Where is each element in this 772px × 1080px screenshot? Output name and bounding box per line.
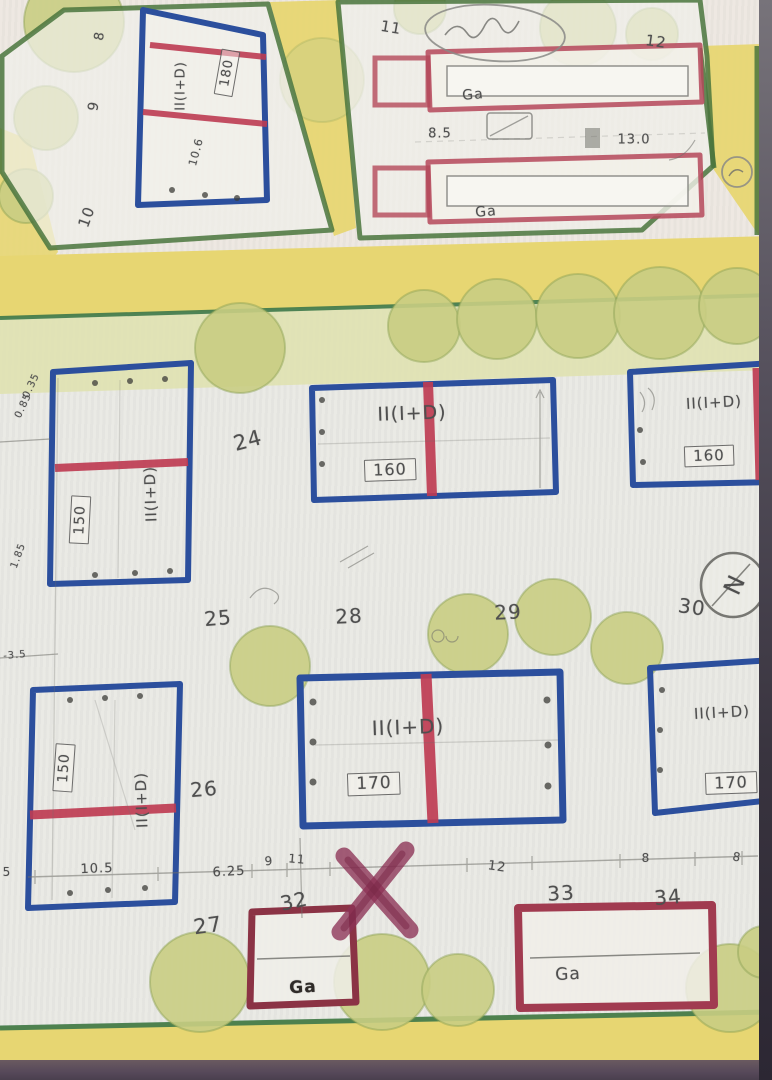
plot-number-33: 33 bbox=[547, 882, 575, 903]
ga-label-garage-left: Ga bbox=[289, 979, 317, 997]
plot-number-11: 11 bbox=[379, 19, 402, 37]
plot-number-12: 12 bbox=[645, 33, 668, 51]
dim-1-85: 1.85 bbox=[10, 542, 28, 570]
dim-12: 12 bbox=[487, 859, 507, 874]
compass-letter: N bbox=[718, 571, 748, 598]
plot-number-25: 25 bbox=[203, 607, 232, 629]
bldg-type-b3: II(I+D) bbox=[686, 394, 743, 412]
area-box-180: 180 bbox=[214, 49, 241, 97]
bldg-type-b5: II(I+D) bbox=[371, 716, 444, 739]
dim-9: 9 bbox=[264, 855, 274, 868]
plot-number-10: 10 bbox=[76, 205, 97, 230]
dim-13-0: 13.0 bbox=[618, 134, 651, 147]
ga-label-garage-right: Ga bbox=[555, 966, 581, 984]
dim-3-5: -3.5 bbox=[3, 650, 27, 662]
photo-edge-bottom bbox=[0, 1060, 772, 1080]
area-box-150-b1: 150 bbox=[69, 496, 91, 545]
plot-number-24: 24 bbox=[231, 427, 264, 455]
plot-number-8: 8 bbox=[93, 30, 107, 41]
plot-number-32: 32 bbox=[278, 888, 309, 913]
dim-11: 11 bbox=[288, 852, 306, 865]
bldg-type-b2: II(I+D) bbox=[377, 403, 447, 424]
area-box-160-b3: 160 bbox=[684, 445, 734, 468]
plot-number-29: 29 bbox=[494, 601, 522, 622]
plot-number-9: 9 bbox=[86, 100, 102, 112]
area-box-170-b5: 170 bbox=[347, 772, 401, 797]
plot-number-28: 28 bbox=[335, 605, 363, 626]
dim-0-85: 0.85 bbox=[14, 392, 34, 420]
area-box-160-b2: 160 bbox=[364, 458, 416, 482]
area-box-150-b4: 150 bbox=[52, 743, 75, 792]
bldg-type-b4: II(I+D) bbox=[134, 772, 151, 829]
plot-number-30: 30 bbox=[677, 595, 707, 619]
photo-edge-right bbox=[759, 0, 772, 1080]
dim-5: 5 bbox=[3, 866, 12, 878]
plot-number-26: 26 bbox=[189, 778, 218, 800]
dim-8-b: 8 bbox=[732, 850, 743, 863]
labels-layer: 891010.6180II(I+D)1112Ga8.513.0Ga0.350.8… bbox=[0, 0, 772, 1080]
dim-10-6: 10.6 bbox=[187, 137, 205, 167]
bldg-type-b1: II(I+D) bbox=[143, 466, 160, 523]
dim-8-a: 8 bbox=[642, 852, 651, 864]
dim-6-25: 6.25 bbox=[212, 865, 246, 880]
ga-label-top-a: Ga bbox=[462, 87, 485, 103]
plot-number-34: 34 bbox=[653, 886, 682, 908]
site-plan-photo: 891010.6180II(I+D)1112Ga8.513.0Ga0.350.8… bbox=[0, 0, 772, 1080]
area-box-170-b6: 170 bbox=[705, 771, 757, 795]
ga-label-top-b: Ga bbox=[475, 204, 498, 220]
dim-8-5: 8.5 bbox=[428, 128, 452, 141]
dim-10-5: 10.5 bbox=[80, 862, 113, 876]
plot-number-27: 27 bbox=[192, 914, 223, 939]
bldg-type-topleft: II(I+D) bbox=[175, 61, 188, 111]
bldg-type-b6: II(I+D) bbox=[694, 704, 751, 722]
